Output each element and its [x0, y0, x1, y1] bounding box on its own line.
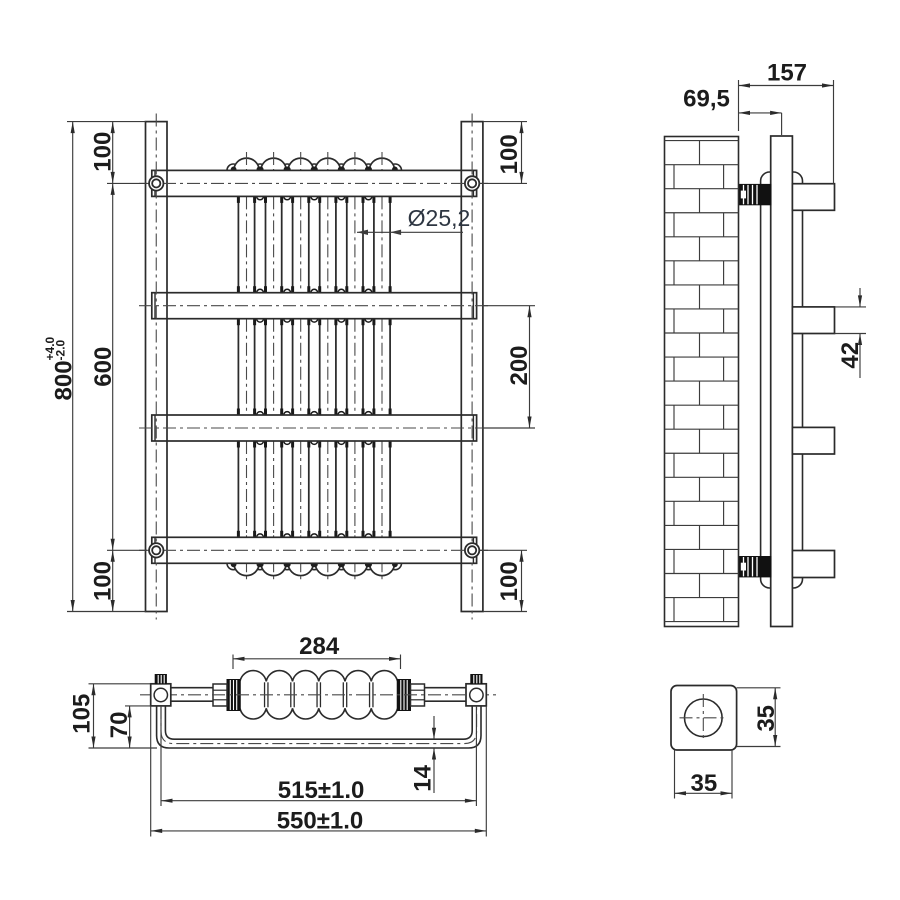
svg-text:100: 100: [496, 561, 523, 601]
svg-text:105: 105: [68, 694, 95, 734]
svg-text:600: 600: [90, 347, 117, 387]
svg-text:35: 35: [691, 770, 718, 797]
svg-text:Ø25,2: Ø25,2: [408, 205, 471, 231]
svg-text:42: 42: [837, 342, 864, 369]
svg-text:200: 200: [506, 345, 533, 385]
svg-text:100: 100: [90, 561, 117, 601]
svg-text:70: 70: [106, 712, 133, 739]
svg-text:100: 100: [90, 132, 117, 172]
svg-text:14: 14: [410, 764, 437, 791]
svg-text:35: 35: [753, 705, 780, 732]
svg-text:69,5: 69,5: [683, 86, 730, 113]
svg-text:284: 284: [299, 633, 340, 660]
svg-text:515±1.0: 515±1.0: [278, 777, 365, 804]
svg-text:100: 100: [496, 134, 523, 174]
svg-text:550±1.0: 550±1.0: [277, 808, 364, 835]
svg-text:157: 157: [767, 60, 807, 87]
